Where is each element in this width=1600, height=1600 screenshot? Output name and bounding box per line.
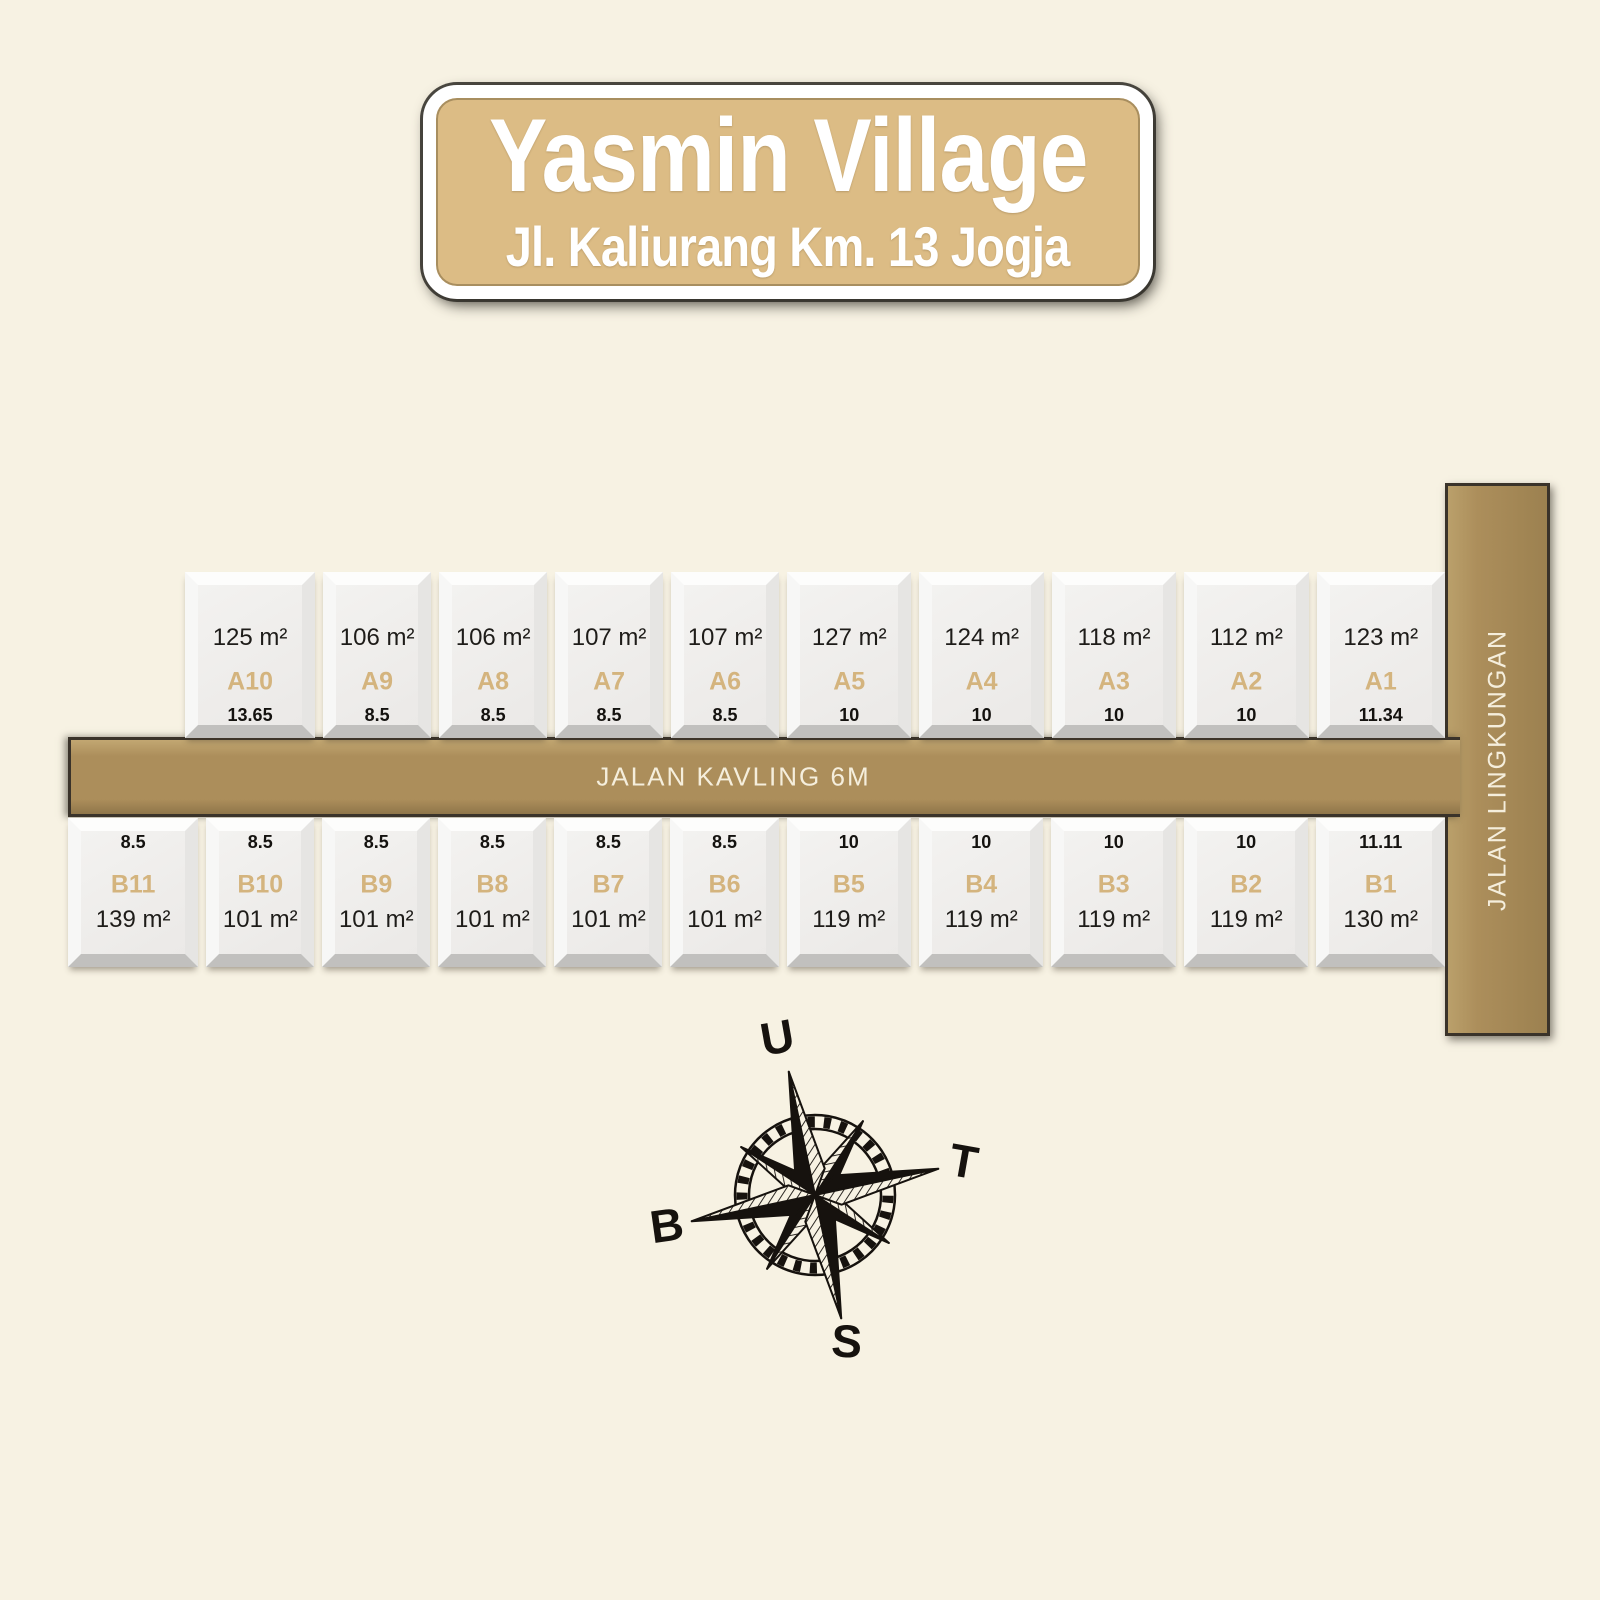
plot-area-label: 101 m² [675,908,773,932]
plot-area-label: 119 m² [1189,908,1303,932]
plot-front-label: 8.5 [444,706,542,724]
plot-area-label: 106 m² [328,626,426,650]
plot-area-label: 119 m² [792,908,906,932]
plot-area-label: 101 m² [559,908,657,932]
plot-b3[interactable]: 10B3119 m² [1051,818,1175,967]
plot-id-label: A1 [1322,669,1440,694]
plot-front-label: 8.5 [559,833,657,851]
plot-area-label: 130 m² [1321,908,1440,932]
plot-b5[interactable]: 10B5119 m² [787,818,911,967]
plot-id-label: A5 [792,669,906,694]
plot-area-label: 139 m² [73,908,193,932]
project-title: Yasmin Village [489,109,1087,205]
plot-a7[interactable]: 107 m²A78.5 [555,572,663,738]
plot-b8[interactable]: 8.5B8101 m² [438,818,546,967]
plot-id-label: B9 [327,873,425,898]
plot-b9[interactable]: 8.5B9101 m² [322,818,430,967]
plot-a1[interactable]: 123 m²A111.34 [1317,572,1445,738]
plot-front-label: 10 [924,706,1038,724]
compass-rose: U T S B [635,1015,995,1375]
plot-row-b: 8.5B11139 m²8.5B10101 m²8.5B9101 m²8.5B8… [68,818,1445,967]
plot-front-label: 10 [1057,706,1171,724]
plot-b7[interactable]: 8.5B7101 m² [554,818,662,967]
plot-id-label: B5 [792,873,906,898]
plot-area-label: 123 m² [1322,626,1440,650]
plot-id-label: B1 [1321,873,1440,898]
project-banner: Yasmin Village Jl. Kaliurang Km. 13 Jogj… [423,85,1153,299]
plot-id-label: B6 [675,873,773,898]
plot-id-label: B3 [1056,873,1170,898]
plot-id-label: B4 [924,873,1038,898]
plot-area-label: 101 m² [327,908,425,932]
plot-area-label: 107 m² [560,626,658,650]
plot-id-label: B10 [211,873,309,898]
plot-id-label: A3 [1057,669,1171,694]
plot-a3[interactable]: 118 m²A310 [1052,572,1176,738]
plot-b4[interactable]: 10B4119 m² [919,818,1043,967]
plot-front-label: 10 [1056,833,1170,851]
plot-front-label: 11.34 [1322,706,1440,724]
plot-a4[interactable]: 124 m²A410 [919,572,1043,738]
plot-front-label: 13.65 [190,706,310,724]
road-jalan-kavling: JALAN KAVLING 6M [68,737,1460,817]
plot-a6[interactable]: 107 m²A68.5 [671,572,779,738]
plot-area-label: 119 m² [1056,908,1170,932]
plot-a5[interactable]: 127 m²A510 [787,572,911,738]
plot-id-label: B7 [559,873,657,898]
plot-row-a: 125 m²A1013.65106 m²A98.5106 m²A88.5107 … [185,572,1445,738]
plot-front-label: 10 [792,706,906,724]
plot-front-label: 8.5 [73,833,193,851]
road-jalan-lingkungan-label: JALAN LINGKUNGAN [1483,629,1512,911]
project-address: Jl. Kaliurang Km. 13 Jogja [506,219,1070,275]
plot-a2[interactable]: 112 m²A210 [1184,572,1308,738]
plot-area-label: 118 m² [1057,626,1171,650]
plot-id-label: B2 [1189,873,1303,898]
plot-id-label: A8 [444,669,542,694]
plot-a8[interactable]: 106 m²A88.5 [439,572,547,738]
plot-front-label: 10 [1189,833,1303,851]
plot-id-label: A9 [328,669,426,694]
plot-area-label: 107 m² [676,626,774,650]
plot-id-label: A2 [1189,669,1303,694]
plot-area-label: 125 m² [190,626,310,650]
plot-id-label: A10 [190,669,310,694]
plot-id-label: A6 [676,669,774,694]
plot-area-label: 112 m² [1189,626,1303,650]
plot-front-label: 8.5 [560,706,658,724]
plot-front-label: 8.5 [676,706,774,724]
compass-label-east: T [945,1133,982,1189]
compass-label-west: B [647,1197,687,1253]
plot-front-label: 8.5 [443,833,541,851]
plot-area-label: 101 m² [443,908,541,932]
plot-b1[interactable]: 11.11B1130 m² [1316,818,1445,967]
compass-label-north: U [756,1015,798,1066]
road-jalan-kavling-label: JALAN KAVLING 6M [71,762,1396,793]
plot-area-label: 106 m² [444,626,542,650]
plot-b2[interactable]: 10B2119 m² [1184,818,1308,967]
site-plan: Yasmin Village Jl. Kaliurang Km. 13 Jogj… [0,0,1600,1600]
plot-area-label: 119 m² [924,908,1038,932]
plot-front-label: 8.5 [211,833,309,851]
plot-a9[interactable]: 106 m²A98.5 [323,572,431,738]
plot-id-label: A4 [924,669,1038,694]
road-jalan-lingkungan: JALAN LINGKUNGAN [1445,483,1550,1036]
plot-front-label: 10 [792,833,906,851]
plot-id-label: A7 [560,669,658,694]
plot-front-label: 11.11 [1321,833,1440,851]
compass-star [666,1046,965,1345]
plot-area-label: 101 m² [211,908,309,932]
plot-id-label: B11 [73,873,193,898]
plot-b6[interactable]: 8.5B6101 m² [670,818,778,967]
plot-area-label: 124 m² [924,626,1038,650]
plot-front-label: 10 [1189,706,1303,724]
plot-front-label: 8.5 [327,833,425,851]
plot-b10[interactable]: 8.5B10101 m² [206,818,314,967]
plot-front-label: 8.5 [675,833,773,851]
plot-front-label: 10 [924,833,1038,851]
plot-front-label: 8.5 [328,706,426,724]
compass-label-south: S [830,1314,863,1368]
plot-id-label: B8 [443,873,541,898]
plot-b11[interactable]: 8.5B11139 m² [68,818,198,967]
plot-a10[interactable]: 125 m²A1013.65 [185,572,315,738]
plot-area-label: 127 m² [792,626,906,650]
